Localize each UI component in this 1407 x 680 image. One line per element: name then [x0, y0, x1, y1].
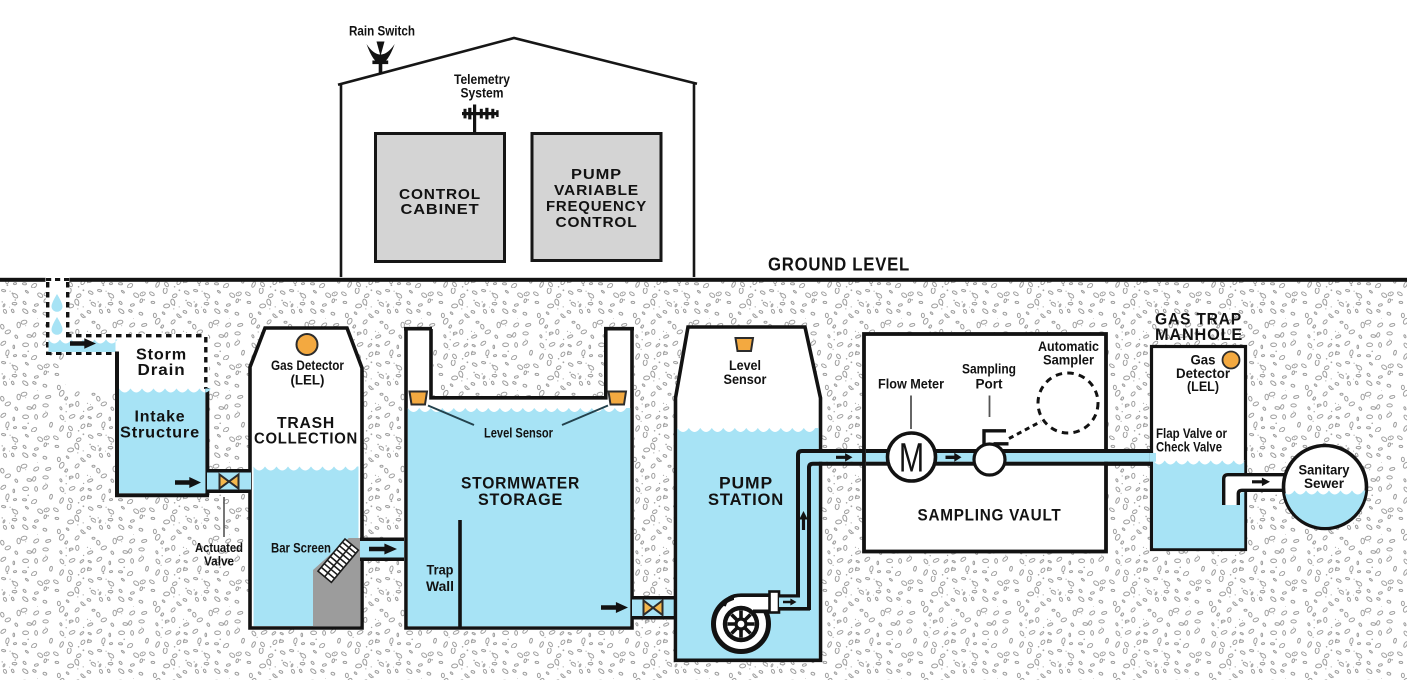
svg-text:Sensor: Sensor [724, 372, 768, 387]
svg-text:Check Valve: Check Valve [1156, 440, 1222, 455]
svg-text:MANHOLE: MANHOLE [1155, 326, 1243, 344]
svg-text:Valve: Valve [204, 554, 234, 569]
svg-text:Sewer: Sewer [1304, 476, 1345, 491]
svg-text:GROUND LEVEL: GROUND LEVEL [768, 255, 910, 275]
svg-text:Rain Switch: Rain Switch [349, 23, 415, 39]
svg-text:VARIABLE: VARIABLE [554, 182, 639, 199]
svg-text:System: System [461, 86, 504, 101]
svg-text:Trap: Trap [427, 563, 454, 578]
svg-text:STORMWATER: STORMWATER [461, 475, 580, 493]
svg-text:TRASH: TRASH [277, 415, 335, 432]
svg-text:STATION: STATION [708, 491, 784, 509]
svg-text:Flow Meter: Flow Meter [878, 377, 945, 392]
svg-text:(LEL): (LEL) [291, 373, 325, 388]
svg-text:CONTROL: CONTROL [556, 214, 638, 231]
svg-text:Level: Level [729, 358, 761, 373]
svg-text:Sampling: Sampling [962, 362, 1016, 377]
svg-text:PUMP: PUMP [571, 166, 622, 183]
svg-text:STORAGE: STORAGE [478, 491, 563, 509]
svg-text:Sampler: Sampler [1043, 353, 1095, 368]
svg-text:(LEL): (LEL) [1187, 379, 1219, 394]
svg-text:CABINET: CABINET [401, 201, 480, 218]
svg-text:Wall: Wall [426, 579, 454, 594]
svg-text:Bar Screen: Bar Screen [271, 541, 331, 556]
svg-text:Level Sensor: Level Sensor [484, 426, 554, 441]
svg-text:Gas Detector: Gas Detector [271, 358, 345, 373]
svg-text:Intake: Intake [135, 409, 186, 426]
svg-text:Port: Port [976, 377, 1004, 392]
svg-text:SAMPLING VAULT: SAMPLING VAULT [918, 507, 1062, 525]
svg-text:PUMP: PUMP [719, 475, 773, 493]
svg-text:M: M [899, 434, 924, 481]
svg-text:COLLECTION: COLLECTION [254, 431, 358, 448]
svg-text:Structure: Structure [120, 425, 200, 442]
svg-text:Drain: Drain [138, 362, 186, 379]
svg-text:FREQUENCY: FREQUENCY [546, 198, 647, 215]
svg-text:Storm: Storm [136, 347, 187, 364]
